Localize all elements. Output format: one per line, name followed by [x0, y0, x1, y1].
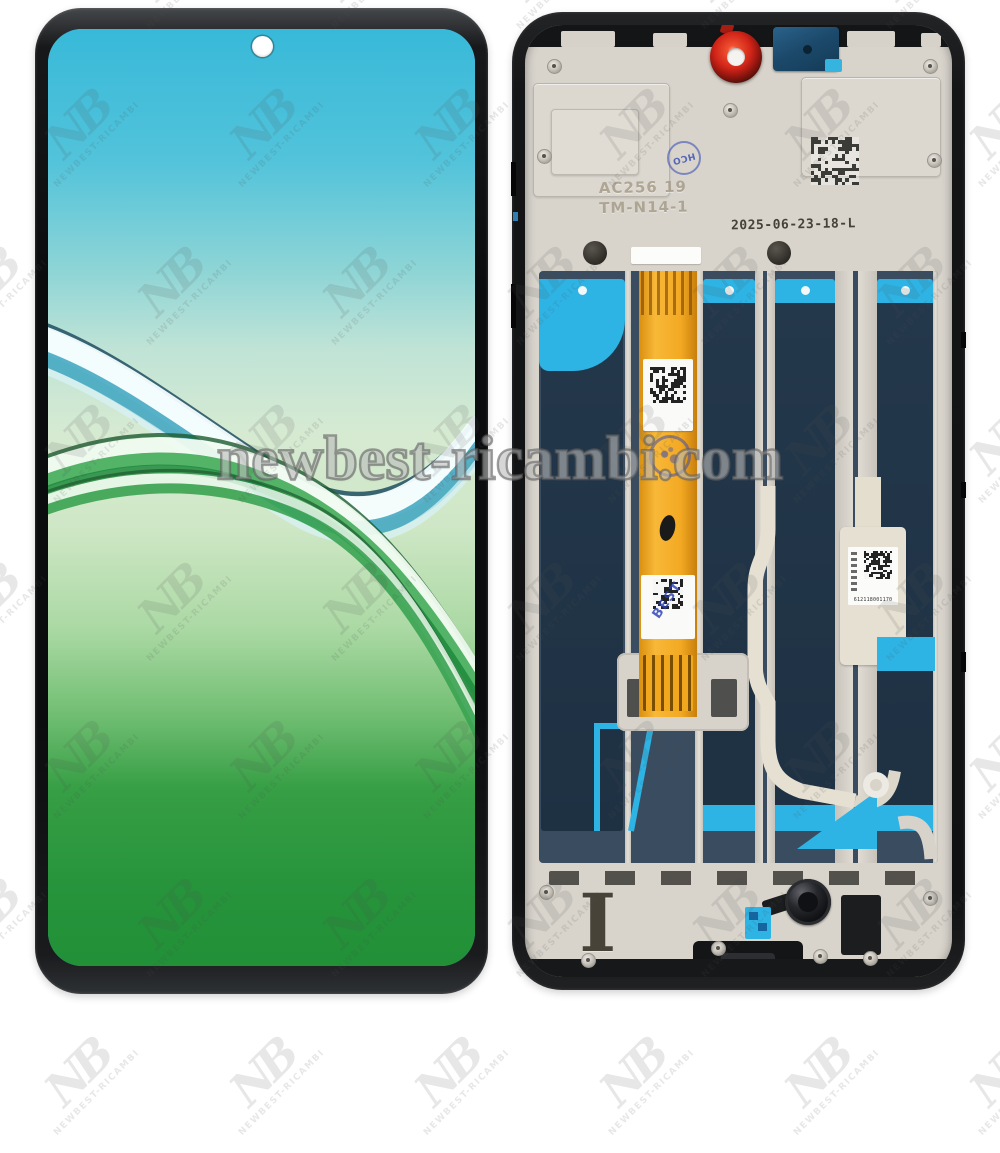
- screw: [927, 153, 942, 168]
- metal-tab: [921, 33, 941, 47]
- brand-monogram: NB: [932, 1002, 1000, 1144]
- brand-text: NEWBEST-RICAMBI: [592, 1033, 712, 1153]
- blue-trace-lines: [597, 723, 667, 831]
- screw: [711, 941, 726, 956]
- connector-pad: [711, 679, 737, 717]
- label-side-marks: [851, 552, 857, 592]
- frame-notch: [961, 652, 966, 672]
- flex-contact: [749, 912, 758, 920]
- qc-circle-stamp: HCO: [667, 141, 701, 175]
- model-stamp-line2: TM-N14-1: [599, 196, 729, 218]
- flex-orange-body: [639, 271, 697, 717]
- screw: [923, 891, 938, 906]
- flex-contact: [758, 923, 767, 931]
- metal-tab: [561, 31, 615, 47]
- right-flex-neck: [855, 477, 881, 529]
- wallpaper-gradient-art: [48, 29, 475, 966]
- brand-monogram: NB: [747, 1002, 889, 1144]
- flex-connector-end: [643, 655, 693, 711]
- product-photo-page: { "watermark": { "site": "newbest-ricamb…: [0, 0, 1000, 1000]
- flex-contact-stripes: [641, 271, 695, 315]
- metal-tab: [847, 31, 895, 47]
- vibration-motor: [785, 879, 831, 925]
- screw: [723, 103, 738, 118]
- flex-qr-label-2: BEST: [641, 575, 695, 639]
- bottom-blue-flex: [745, 907, 771, 939]
- camera-hole: [727, 48, 745, 66]
- screw-post: [583, 241, 607, 265]
- brand-watermark-mark: NBNEWBEST-RICAMBI: [562, 1002, 713, 1153]
- brand-text: NEWBEST-RICAMBI: [407, 1033, 527, 1153]
- screw: [537, 149, 552, 164]
- blank-white-label: [631, 247, 701, 264]
- frame-notch: [961, 332, 966, 348]
- etched-qr-code: [811, 137, 859, 185]
- blue-adhesive-pad: [877, 637, 935, 671]
- screw: [813, 949, 828, 964]
- flex-pad-circle-inner: [870, 779, 882, 791]
- side-key-blue-mark: [513, 212, 518, 221]
- qr-code: [650, 367, 686, 403]
- metal-tab: [653, 33, 687, 47]
- camera-gasket-ring: [710, 31, 762, 83]
- brand-monogram: NB: [562, 1002, 704, 1144]
- brand-monogram: NB: [192, 1002, 334, 1144]
- serial-number: 612118001170: [849, 597, 897, 603]
- back-metal-plate: HCO AC256 19 TM-N14-1 2025-06-23-18-L: [525, 25, 952, 977]
- screw: [923, 59, 938, 74]
- frame-notch: [511, 284, 516, 328]
- brand-watermark-mark: NBNEWBEST-RICAMBI: [747, 1002, 898, 1153]
- bottom-black-bracket: [841, 895, 881, 955]
- brand-watermark-mark: NBNEWBEST-RICAMBI: [932, 1002, 1000, 1153]
- front-screen-wallpaper: [48, 29, 475, 966]
- brand-text: NEWBEST-RICAMBI: [962, 401, 1000, 521]
- screw: [863, 951, 878, 966]
- camera-module: [773, 27, 839, 71]
- cyan-adhesive-tab: [825, 59, 842, 72]
- frame-notch: [511, 162, 516, 196]
- qc-circle-stamp-text: HCO: [671, 150, 696, 166]
- model-stamp-line1: AC256 19: [599, 176, 729, 198]
- frame-notch: [961, 482, 966, 498]
- metal-wishbone: [899, 822, 931, 859]
- blue-qc-round-stamp: [649, 435, 691, 477]
- brand-text: NEWBEST-RICAMBI: [962, 85, 1000, 205]
- phone-front-view: [35, 8, 488, 994]
- brand-text: NEWBEST-RICAMBI: [37, 1033, 157, 1153]
- motor-core: [798, 892, 818, 912]
- flex-qr-label: [643, 359, 693, 431]
- front-camera-punch-hole: [252, 36, 273, 57]
- camera-module-hole: [803, 45, 812, 54]
- date-stamp: 2025-06-23-18-L: [731, 216, 891, 234]
- brand-monogram: NB: [377, 1002, 519, 1144]
- display-back-panel: BEST 612118001170: [539, 271, 938, 863]
- screw: [581, 953, 596, 968]
- phone-back-view: HCO AC256 19 TM-N14-1 2025-06-23-18-L: [512, 12, 965, 990]
- main-flex-cable: BEST: [639, 271, 697, 733]
- brand-monogram: NB: [7, 1002, 149, 1144]
- brand-text: NEWBEST-RICAMBI: [962, 1033, 1000, 1153]
- screw-post: [767, 241, 791, 265]
- brand-watermark-mark: NBNEWBEST-RICAMBI: [7, 1002, 158, 1153]
- brand-watermark-mark: NBNEWBEST-RICAMBI: [377, 1002, 528, 1153]
- shield-plate-inner: [551, 109, 639, 175]
- brand-text: NEWBEST-RICAMBI: [777, 1033, 897, 1153]
- qr-code: [864, 551, 892, 579]
- frame-i-marking: I: [579, 883, 616, 963]
- serial-label: 612118001170: [848, 547, 898, 605]
- model-stamp: AC256 19 TM-N14-1: [599, 176, 730, 218]
- screw: [547, 59, 562, 74]
- brand-watermark-mark: NBNEWBEST-RICAMBI: [192, 1002, 343, 1153]
- brand-text: NEWBEST-RICAMBI: [962, 717, 1000, 837]
- screw: [539, 885, 554, 900]
- brand-text: NEWBEST-RICAMBI: [222, 1033, 342, 1153]
